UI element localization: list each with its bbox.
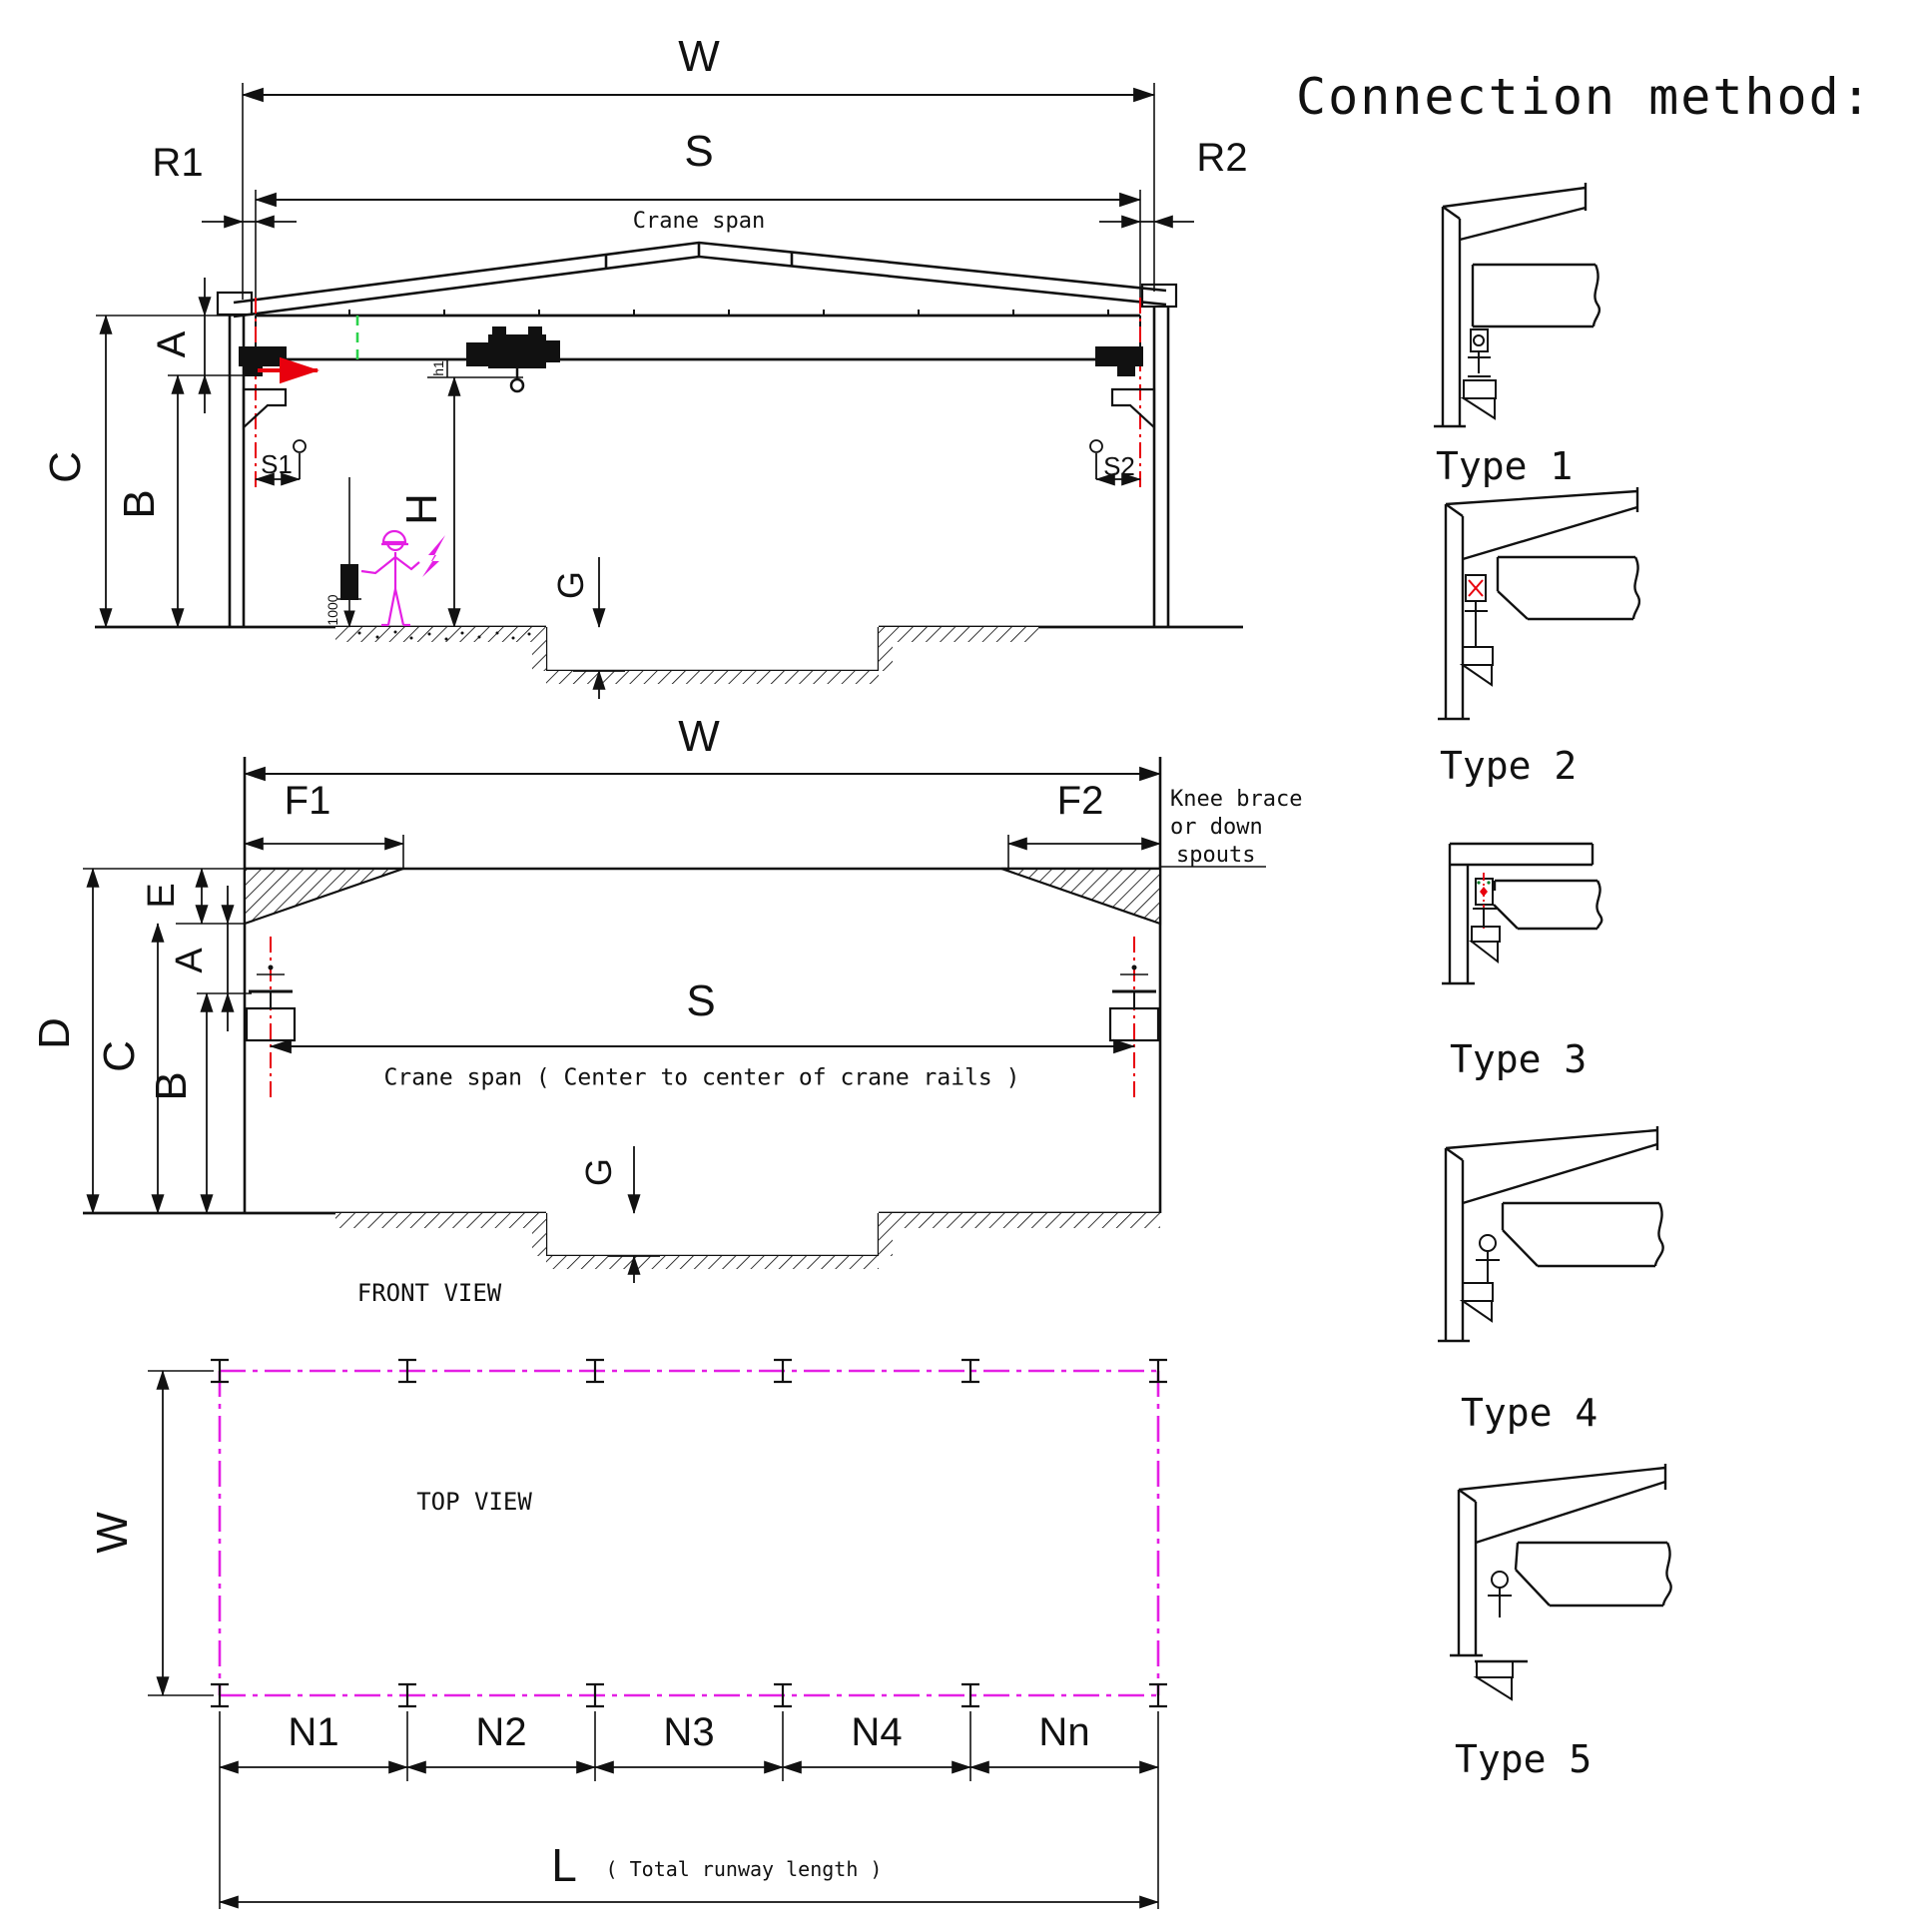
hook-icon	[511, 379, 523, 391]
connection-method-title: Connection method:	[1296, 72, 1873, 122]
crane-installation-drawing: W S Crane span R1 R2 A B C H G S1 S2 h1 …	[0, 0, 1914, 1932]
corbel-left	[244, 389, 286, 427]
dim-label-c-front: C	[98, 1040, 142, 1072]
dim-label-s-section: S	[684, 130, 713, 174]
type-2-drawing	[1438, 487, 1639, 719]
type-1-label: Type 1	[1436, 447, 1573, 485]
dim-label-w-top: W	[91, 1512, 135, 1554]
dim-label-w-section: W	[678, 35, 720, 79]
dim-label-r2: R2	[1196, 138, 1247, 178]
runway-outline	[220, 1371, 1158, 1695]
worker-icon	[361, 531, 445, 625]
front-view-drawing	[83, 757, 1266, 1283]
bay-label-n4: N4	[851, 1712, 902, 1752]
dim-label-w-front: W	[678, 715, 720, 759]
front-view-title: FRONT VIEW	[357, 1281, 502, 1305]
knee-note-line1: Knee brace	[1170, 789, 1302, 811]
knee-note-line2: or down	[1170, 817, 1263, 839]
column-symbols	[211, 1360, 1167, 1706]
lightning-icon	[422, 535, 445, 577]
cross-section-drawing	[95, 83, 1243, 699]
dim-label-e: E	[143, 883, 181, 908]
crane-rail-right	[1110, 937, 1158, 1100]
type-5-label: Type 5	[1455, 1740, 1592, 1778]
crane-span-note-front: Crane span ( Center to center of crane r…	[384, 1067, 1020, 1090]
drawing-linework	[0, 0, 1914, 1932]
dim-label-f2: F2	[1057, 781, 1104, 821]
dim-label-b-front: B	[150, 1071, 194, 1100]
bay-label-n2: N2	[475, 1712, 526, 1752]
pendant-control	[337, 477, 361, 627]
roof-truss	[234, 243, 1166, 317]
total-runway-note: ( Total runway length )	[606, 1859, 883, 1879]
dim-label-a-section: A	[152, 331, 192, 358]
bay-label-n3: N3	[663, 1712, 714, 1752]
top-view-drawing	[148, 1360, 1167, 1909]
dim-label-h1: h1	[431, 360, 445, 376]
end-truck-right	[1096, 347, 1142, 375]
crane-span-note-section: Crane span	[633, 211, 765, 233]
bay-label-nn: Nn	[1038, 1712, 1089, 1752]
dim-label-s1: S1	[261, 451, 293, 477]
dim-label-s-front: S	[686, 979, 715, 1023]
front-floor-and-pit	[83, 1213, 1160, 1269]
top-view-title: TOP VIEW	[416, 1490, 532, 1514]
type-4-drawing	[1438, 1126, 1663, 1341]
knee-brace-right	[1001, 869, 1160, 924]
dim-label-a-front: A	[171, 948, 209, 972]
dim-label-g-section: G	[553, 571, 589, 599]
bay-label-n1: N1	[288, 1712, 338, 1752]
corbel-right	[1112, 389, 1154, 427]
type-3-label: Type 3	[1450, 1040, 1587, 1078]
dim-label-h: H	[400, 493, 444, 525]
crane-bridge-girder	[256, 310, 1140, 359]
dim-label-l: L	[551, 1842, 577, 1888]
type-5-drawing	[1450, 1464, 1671, 1699]
hoist-trolley-icon	[467, 327, 559, 391]
floor-and-pit	[95, 627, 1243, 684]
type-3-drawing	[1442, 844, 1601, 983]
knee-brace-left	[245, 869, 403, 924]
building-walls	[230, 307, 1168, 627]
knee-note-line3: spouts	[1176, 845, 1255, 867]
dim-label-g-front: G	[581, 1158, 617, 1186]
dim-label-c-section: C	[44, 451, 88, 483]
type-2-label: Type 2	[1440, 747, 1577, 785]
dim-label-d: D	[33, 1017, 77, 1049]
dim-label-s2: S2	[1103, 453, 1135, 479]
type-4-label: Type 4	[1461, 1394, 1597, 1432]
crane-rail-left	[247, 937, 295, 1100]
dim-label-r1: R1	[152, 143, 203, 183]
type-1-drawing	[1434, 183, 1599, 426]
pendant-height-label: 1000	[325, 594, 339, 625]
dim-label-f1: F1	[285, 781, 331, 821]
dim-label-b-section: B	[118, 489, 162, 518]
connection-type-drawings	[1434, 183, 1671, 1699]
